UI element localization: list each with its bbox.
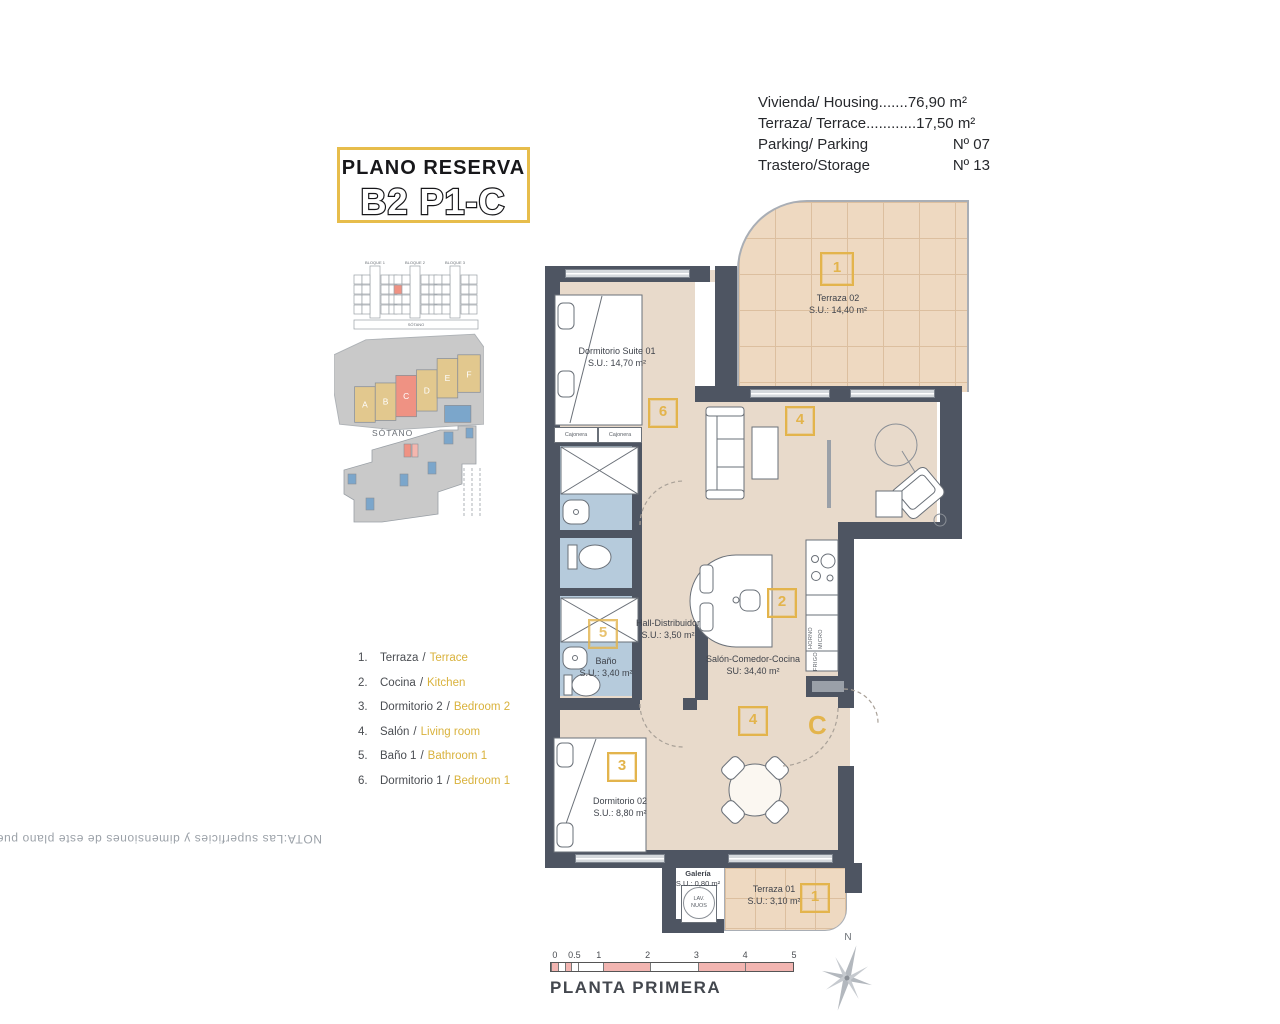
scale-ticks: 0 0.5 1 2 3 4 5 <box>550 950 794 962</box>
sink-ensuite <box>563 500 589 524</box>
legend-separator: / <box>413 726 416 738</box>
scale-bar-segments <box>550 962 794 972</box>
info-label: Terraza/ Terrace............ <box>758 113 916 134</box>
legend-item-bano: 5. Baño 1 / Bathroom 1 <box>358 744 510 769</box>
scale-bar: 0 0.5 1 2 3 4 5 PLANTA PRIMERA <box>550 950 794 998</box>
info-row-storage: Trastero/Storage Nº 13 <box>758 155 990 176</box>
legend-number: 2. <box>358 677 380 689</box>
legend-number: 5. <box>358 750 380 762</box>
legend-separator: / <box>420 750 423 762</box>
compass-north-label: N <box>844 932 851 943</box>
title-box: PLANO RESERVA B2 P1-C <box>337 147 530 223</box>
legend-separator: / <box>447 775 450 787</box>
legend-item-dormitorio1: 6. Dormitorio 1 / Bedroom 1 <box>358 769 510 794</box>
legend-es: Dormitorio 2 <box>380 701 443 713</box>
apartment-floor-plan: Cajonera Cajonera HORNO MICRO FRIGO LAV.… <box>540 195 980 945</box>
info-value: Nº 13 <box>953 155 990 176</box>
plan-title: PLANO RESERVA <box>340 157 527 180</box>
legend-item-cocina: 2. Cocina / Kitchen <box>358 671 510 696</box>
building-letter: C <box>403 391 409 401</box>
kitchen-island <box>690 555 772 647</box>
info-value: Nº 07 <box>953 134 990 155</box>
unit-code: B2 P1-C <box>340 180 527 224</box>
floor-caption: PLANTA PRIMERA <box>550 978 794 998</box>
legend-es: Dormitorio 1 <box>380 775 443 787</box>
site-plan-diagram: A B C D E F <box>334 332 484 432</box>
room-legend: 1. Terraza / Terrace 2. Cocina / Kitchen… <box>358 646 510 793</box>
legend-separator: / <box>447 701 450 713</box>
cajonera-box: Cajonera <box>554 427 598 443</box>
kitchen-end-cabinet-inner <box>812 681 844 692</box>
info-label: Trastero/Storage <box>758 155 870 176</box>
cajonera-box: Cajonera <box>598 427 642 443</box>
label-terraza01: Terraza 01 S.U.: 3,10 m² <box>747 883 800 907</box>
elevation-block-label: BLOQUE 3 <box>445 260 466 265</box>
label-galeria: Galería S.U.: 0,80 m² <box>676 869 720 889</box>
label-suite: Dormitorio Suite 01 S.U.: 14,70 m² <box>578 345 655 369</box>
info-label: Vivienda/ Housing....... <box>758 92 908 113</box>
fridge-label: FRIGO <box>813 653 819 671</box>
legend-item-dormitorio2: 3. Dormitorio 2 / Bedroom 2 <box>358 695 510 720</box>
elevation-block-label: BLOQUE 1 <box>365 260 386 265</box>
elevation-block-label: BLOQUE 2 <box>405 260 426 265</box>
entrance-letter: C <box>808 710 827 741</box>
info-label: Parking/ Parking <box>758 134 868 155</box>
legend-number: 4. <box>358 726 380 738</box>
legend-number: 3. <box>358 701 380 713</box>
elevation-diagram: BLOQUE 1 BLOQUE 2 BLOQUE 3 SÓTANO <box>352 258 480 332</box>
legend-separator: / <box>420 677 423 689</box>
legend-separator: / <box>422 652 425 664</box>
micro-label: MICRO <box>818 619 824 649</box>
legend-es: Salón <box>380 726 409 738</box>
info-value: 17,50 m² <box>916 113 975 134</box>
svg-text:B2 P1-C: B2 P1-C <box>360 181 505 222</box>
oven-label: HORNO <box>808 619 814 649</box>
marker-salon-bottom: 4 <box>738 706 768 736</box>
washer-label-line1: LAV. <box>684 896 714 903</box>
shower-ensuite <box>561 447 638 494</box>
building-letter: E <box>445 373 451 383</box>
tv-unit <box>827 440 831 508</box>
side-table <box>876 491 902 517</box>
surface-info: Vivienda/ Housing....... 76,90 m² Terraz… <box>758 92 990 176</box>
marker-cocina: 2 <box>767 588 797 618</box>
marker-salon-top: 4 <box>785 406 815 436</box>
legend-item-terraza: 1. Terraza / Terrace <box>358 646 510 671</box>
info-value: 76,90 m² <box>908 92 967 113</box>
info-row-housing: Vivienda/ Housing....... 76,90 m² <box>758 92 990 113</box>
label-salon: Salón-Comedor-Cocina SU: 34,40 m² <box>706 653 800 677</box>
legend-en: Kitchen <box>427 677 465 689</box>
kitchen-counter <box>806 540 838 671</box>
coffee-table <box>752 427 778 479</box>
marker-bano: 5 <box>588 619 618 649</box>
legend-en: Bathroom 1 <box>428 750 487 762</box>
label-bano: Baño S.U.: 3,40 m² <box>579 655 632 679</box>
legend-en: Bedroom 2 <box>454 701 510 713</box>
legend-es: Terraza <box>380 652 418 664</box>
sofa <box>706 407 744 499</box>
legend-en: Terrace <box>430 652 468 664</box>
basement-diagram: SÓTANO <box>342 420 486 530</box>
label-hall: Hall-Distribuidor S.U.: 3,50 m² <box>636 617 700 641</box>
marker-dorm02: 3 <box>607 752 637 782</box>
building-letter: F <box>466 369 471 379</box>
disclaimer-note: NOTA:Las superficies y dimensiones de es… <box>304 136 322 846</box>
label-terraza02: Terraza 02 S.U.: 14,40 m² <box>809 292 867 316</box>
compass-rose: N <box>812 928 882 1014</box>
marker-suite: 6 <box>648 398 678 428</box>
sotano-label: SÓTANO <box>372 428 413 438</box>
legend-es: Baño 1 <box>380 750 416 762</box>
furniture-layer <box>540 195 980 945</box>
label-dorm02: Dormitorio 02 S.U.: 8,80 m² <box>593 795 647 819</box>
building-letter: A <box>362 399 368 409</box>
legend-en: Bedroom 1 <box>454 775 510 787</box>
dining-table <box>720 755 791 826</box>
washer-label-line2: NUOS <box>684 903 714 910</box>
legend-number: 1. <box>358 652 380 664</box>
elevation-basement-label: SÓTANO <box>408 322 425 327</box>
building-letter: B <box>383 397 389 407</box>
marker-terraza02: 1 <box>820 252 854 286</box>
legend-item-salon: 4. Salón / Living room <box>358 720 510 745</box>
marker-terraza01: 1 <box>800 883 830 913</box>
toilet-ensuite <box>568 545 611 569</box>
info-row-parking: Parking/ Parking Nº 07 <box>758 134 990 155</box>
building-letter: D <box>424 385 430 395</box>
floor-plan-sheet: NOTA:Las superficies y dimensiones de es… <box>0 0 1280 1024</box>
legend-number: 6. <box>358 775 380 787</box>
legend-en: Living room <box>421 726 480 738</box>
info-row-terrace: Terraza/ Terrace............ 17,50 m² <box>758 113 990 134</box>
legend-es: Cocina <box>380 677 416 689</box>
